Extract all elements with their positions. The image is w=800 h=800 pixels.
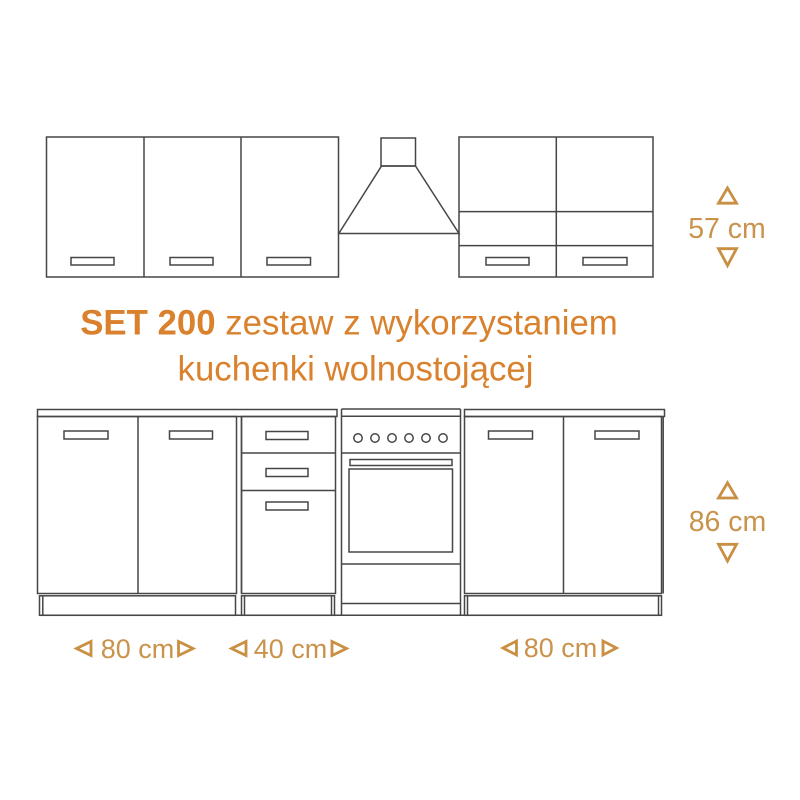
svg-text:57 cm: 57 cm [688,213,766,245]
svg-text:40 cm: 40 cm [254,634,328,664]
svg-text:80 cm: 80 cm [524,633,598,663]
svg-text:86 cm: 86 cm [689,506,767,538]
svg-text:SET 200 zestaw z wykorzystanie: SET 200 zestaw z wykorzystaniem [80,304,618,343]
svg-text:80 cm: 80 cm [101,634,175,664]
svg-text:kuchenki wolnostojącej: kuchenki wolnostojącej [178,350,534,389]
